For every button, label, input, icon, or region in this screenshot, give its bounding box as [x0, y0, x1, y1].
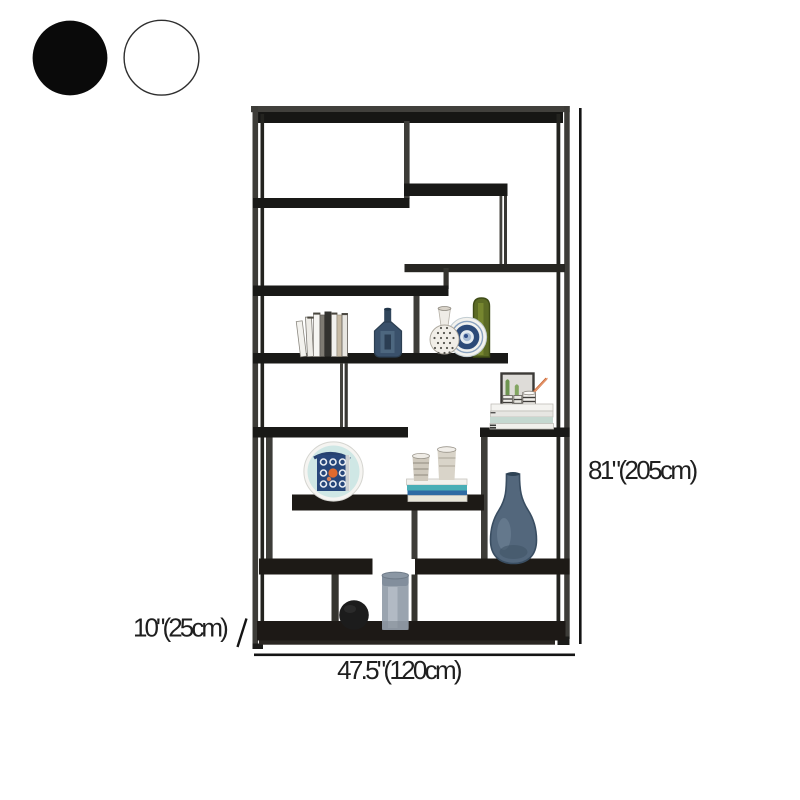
- svg-text:47.5"(120cm): 47.5"(120cm): [337, 655, 462, 685]
- svg-text:81"(205cm): 81"(205cm): [588, 455, 697, 485]
- svg-text:10"(25cm): 10"(25cm): [133, 613, 228, 643]
